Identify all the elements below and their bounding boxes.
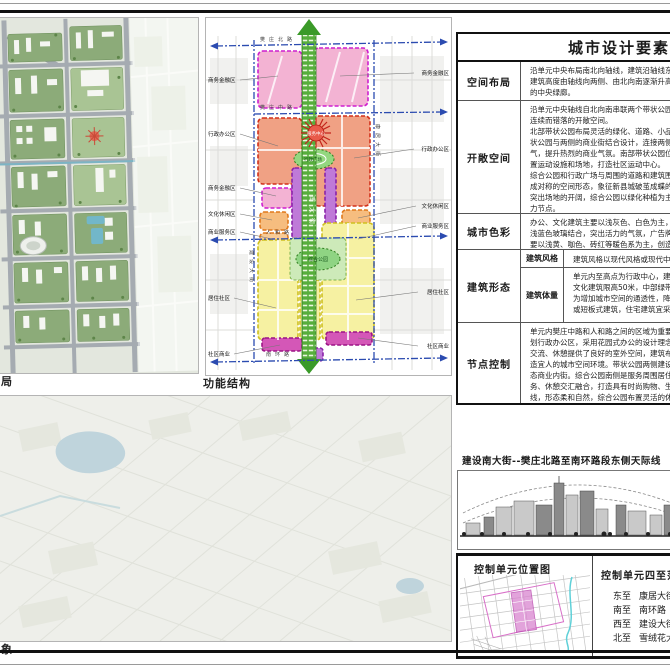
zone-label-left-1: 行政办公区 <box>208 130 236 138</box>
road-label-south: 南环路 <box>266 351 293 358</box>
row-label: 开敞空间 <box>458 101 521 213</box>
row-label: 城市色彩 <box>458 214 521 249</box>
zone-label-left-5: 居住社区 <box>208 294 231 302</box>
zone-label-right-1: 行政办公区 <box>421 145 449 153</box>
table-title: 城市设计要素控制 <box>568 37 670 58</box>
table-row-open-space: 开敞空间 沿单元中央轴线自北向南串联两个带状公园和行政中心广场， 连续而错落的开… <box>458 100 670 213</box>
plan-stadium <box>20 236 46 255</box>
aerial-view-image <box>0 395 452 642</box>
range-item-east: 东至康居大街 <box>613 590 670 604</box>
axis-road-label: 南大街 <box>308 196 316 229</box>
skyline-diagram <box>457 470 670 550</box>
bottom-thick-rule <box>0 650 670 653</box>
master-plan-svg <box>0 18 198 373</box>
range-cell: 控制单元四至范围 东至康居大街 南至南环路 西至建设大街 北至雪绒花大道 <box>592 556 670 656</box>
river-line <box>567 577 572 651</box>
range-item-south: 南至南环路 <box>613 604 670 618</box>
table-row-city-color: 城市色彩 办公、文化建筑主要以浅灰色、白色为主，体现淡雅明快， 浅蓝色玻璃结合，… <box>458 213 670 249</box>
zone-label-left-2: 商务金融区 <box>208 184 236 192</box>
control-unit-section: 控制单元位置图 控制单元四至范围 <box>456 553 670 659</box>
range-title: 控制单元四至范围 <box>601 567 670 582</box>
range-list: 东至康居大街 南至南环路 西至建设大街 北至雪绒花大道 <box>613 590 670 646</box>
zone-label-left-3: 文化休闲区 <box>208 210 236 218</box>
master-plan-image <box>0 17 199 374</box>
zone-label-right-2: 文化休闲区 <box>421 202 449 210</box>
location-map-title: 控制单元位置图 <box>474 561 551 576</box>
zone-label-left-4: 商业服务区 <box>208 228 236 236</box>
aerial-label: 象 <box>1 641 13 657</box>
location-map-svg <box>460 575 590 651</box>
range-item-north: 北至雪绒花大道 <box>613 632 670 646</box>
table-row-node-control: 节点控制 单元内樊庄中路和人和路之间的区域为重要的城市节点，规 划行政办公区，采… <box>458 322 670 403</box>
zone-label-left-0: 商务金融区 <box>208 76 236 84</box>
diagram-label: 功能结构 <box>203 375 251 391</box>
design-control-table: 城市设计要素控制 空间布局 沿单元中央布局南北向轴线，建筑沿轴线东西两侧对称布局… <box>456 32 670 405</box>
top-thin-rule <box>0 3 670 4</box>
row-label: 建筑形态 <box>458 250 521 322</box>
subrow-volume: 建筑体量 单元内至高点为行政中心，建筑高度80米， 文化建筑限高50米，中部绿带… <box>521 267 670 322</box>
functional-structure-svg: 樊庄北路 樊庄中路 人和路 南环路 建设大街 康居大街 南大街 服务中心 行政广… <box>206 18 451 375</box>
table-row-space-layout: 空间布局 沿单元中央布局南北向轴线，建筑沿轴线东西两侧对称布局， 建筑高度由轴线… <box>458 62 670 100</box>
bottom-thin-rule <box>0 664 670 665</box>
skyline-svg <box>458 471 670 547</box>
row-label: 节点控制 <box>458 323 521 403</box>
zone-label-left-6: 社区商业 <box>208 350 231 358</box>
plaza-label: 行政广场 <box>304 156 322 163</box>
row-label: 空间布局 <box>458 62 521 100</box>
road-label-north: 樊庄北路 <box>260 36 296 43</box>
park-label: 综合公园 <box>308 256 328 263</box>
top-thick-rule <box>0 10 670 13</box>
zone-label-right-0: 商务金融区 <box>421 69 449 77</box>
skyline-title: 建设南大街--樊庄北路至南环路段东侧天际线 <box>462 453 661 467</box>
master-plan-label: 局 <box>1 373 13 389</box>
aerial-view-svg <box>0 396 451 641</box>
table-title-row: 城市设计要素控制 <box>458 34 670 62</box>
zone-label-right-5: 社区商业 <box>427 342 450 350</box>
functional-structure-image: 樊庄北路 樊庄中路 人和路 南环路 建设大街 康居大街 南大街 服务中心 行政广… <box>205 17 452 376</box>
zone-label-right-3: 商业服务区 <box>421 222 449 230</box>
subrow-style: 建筑风格 建筑风格以现代风格或现代中式为主。 <box>521 250 670 267</box>
road-label-west: 建设大街 <box>248 250 255 286</box>
road-label-renhe: 人和路 <box>266 229 293 236</box>
service-center-label: 服务中心 <box>307 130 325 137</box>
range-item-west: 西至建设大街 <box>613 618 670 632</box>
location-map-cell: 控制单元位置图 <box>458 556 592 656</box>
planning-sheet: { "left": { "plan_label": "局", "diagram_… <box>0 0 670 670</box>
zone-label-right-4: 居住社区 <box>427 288 450 296</box>
road-label-mid: 樊庄中路 <box>260 104 296 111</box>
table-row-building-form: 建筑形态 建筑风格 建筑风格以现代风格或现代中式为主。 建筑体量 单元内至高点为… <box>458 249 670 322</box>
